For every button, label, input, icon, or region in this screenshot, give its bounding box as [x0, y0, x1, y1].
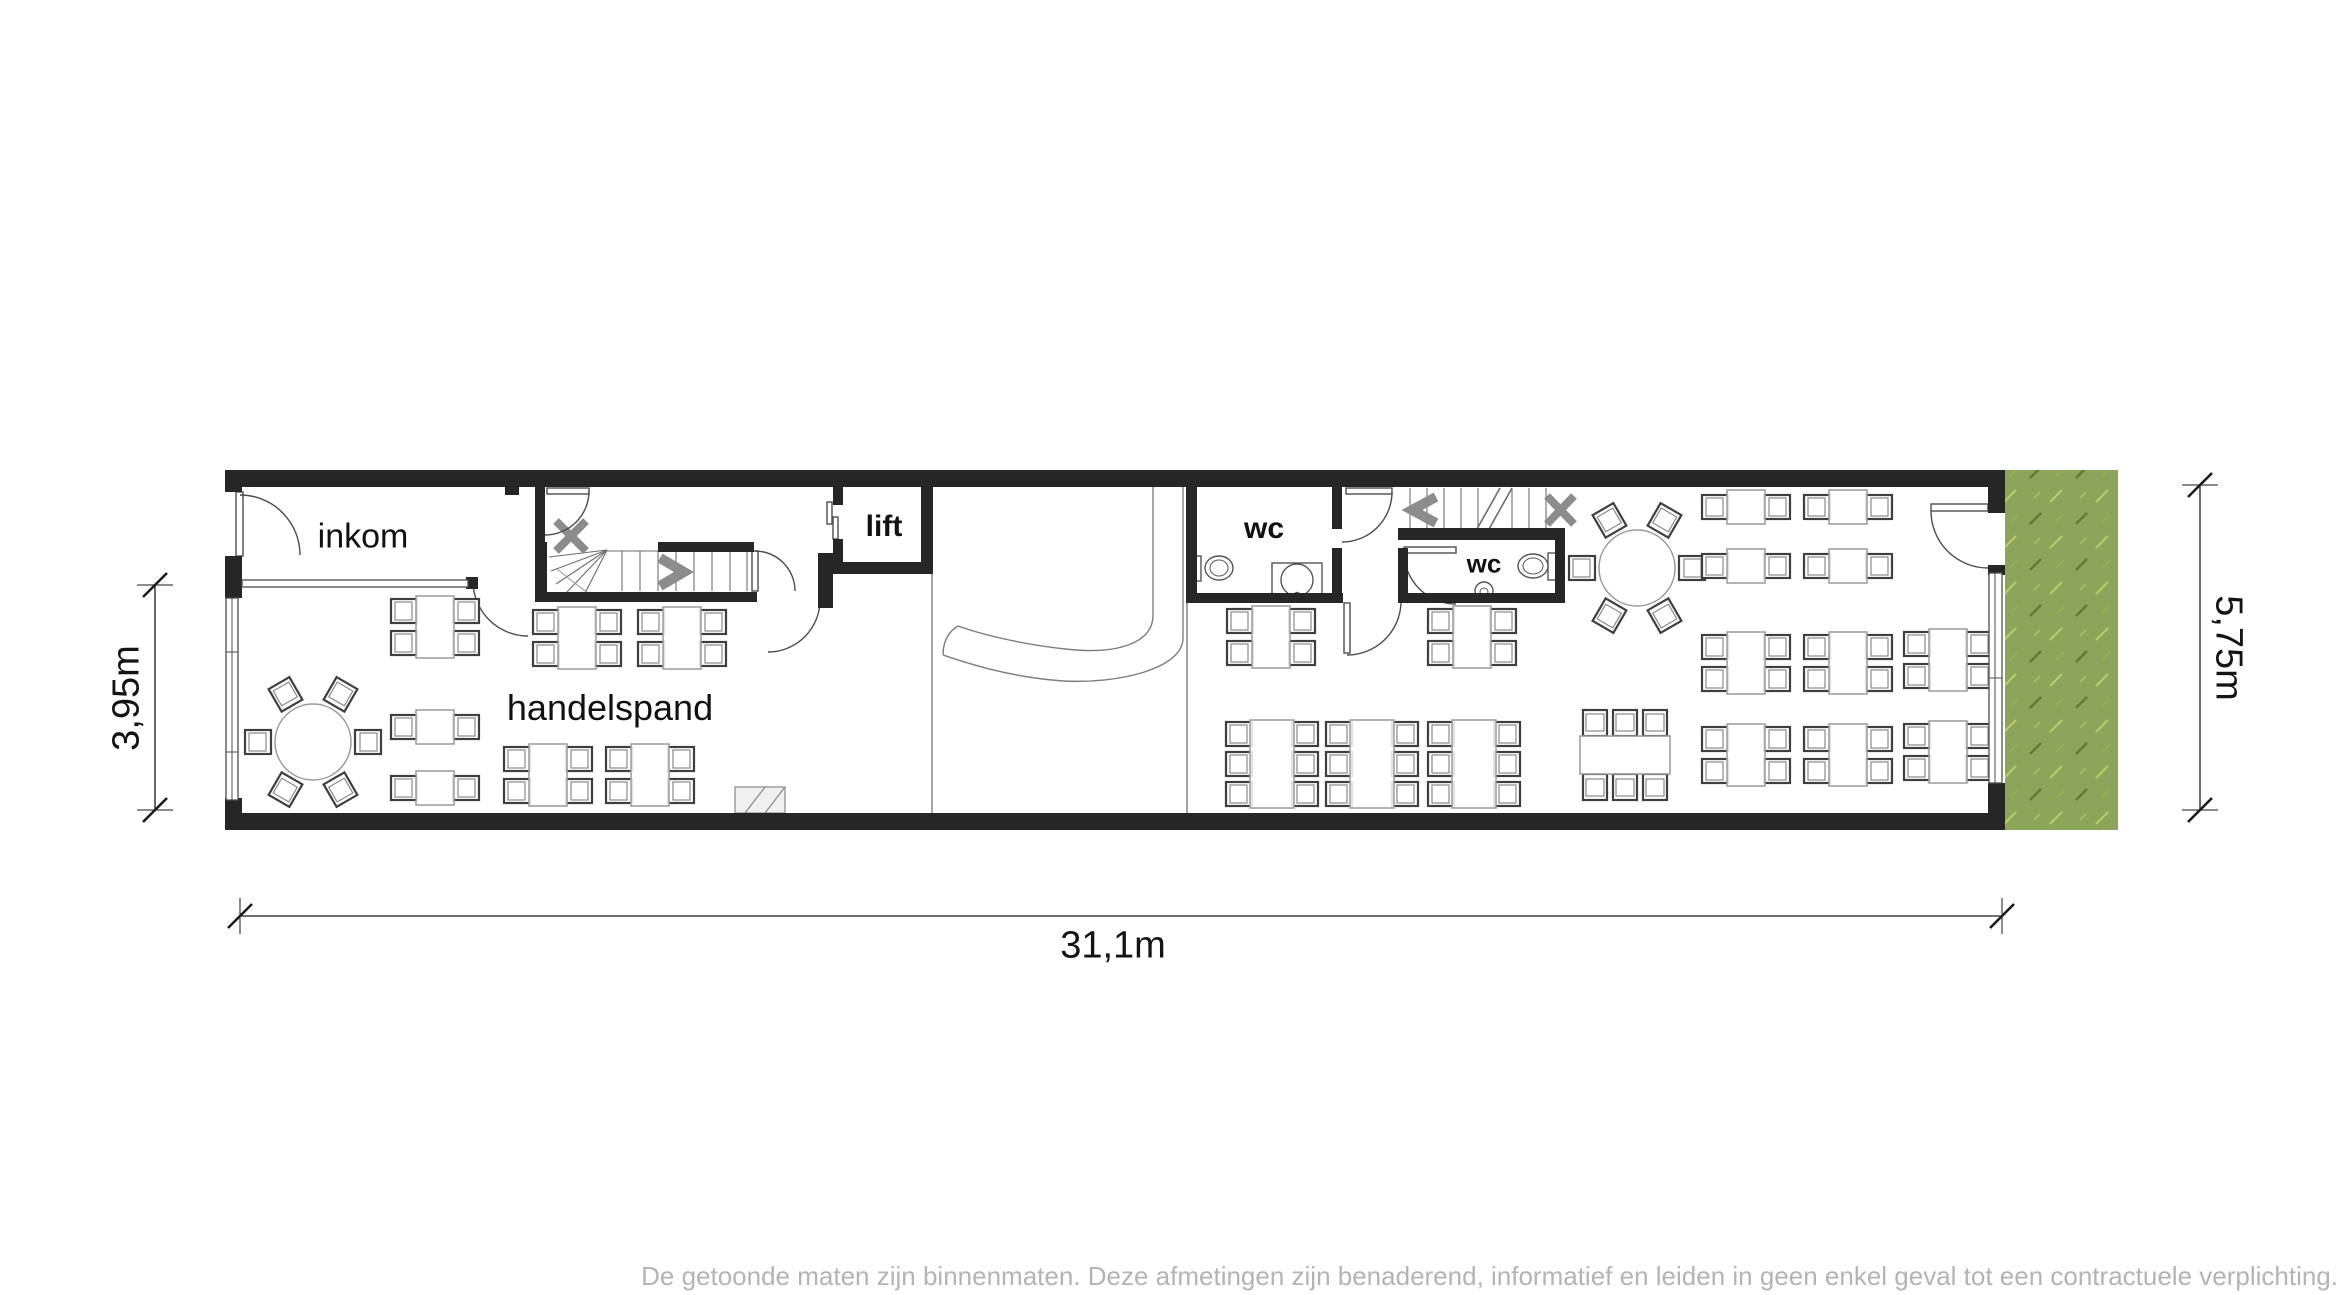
wc-corridor-south-door: [1344, 603, 1401, 655]
furniture-round6: [245, 677, 381, 807]
furniture-table2: [1804, 490, 1892, 524]
garden-strip: [2005, 470, 2118, 830]
stair-direction-arrow-right-icon: [660, 558, 684, 586]
furniture-table2: [1702, 490, 1790, 524]
furniture-table2: [391, 710, 479, 744]
room-label-handelspand: handelspand: [507, 687, 713, 729]
lift-sliding-door: [827, 502, 838, 539]
furniture-table4: [1702, 632, 1790, 694]
dimension-lines: [137, 473, 2218, 934]
inkom-glass-partition: [242, 580, 468, 587]
furniture-table4: [1804, 724, 1892, 786]
furniture-table4: [504, 744, 592, 806]
furniture-table4: [1227, 606, 1315, 668]
bar-counter: [943, 487, 1183, 681]
dim-label-right-depth: 5,75m: [2207, 595, 2250, 701]
window-left: [226, 598, 238, 800]
furniture-table4: [1428, 606, 1516, 668]
corridor-door: [768, 600, 820, 652]
room-label-wc-right: wc: [1467, 549, 1502, 580]
furniture-table6h: [1580, 710, 1670, 800]
furniture-table4: [533, 607, 621, 669]
stair-exit-door: [752, 551, 795, 591]
furniture-table4: [1702, 724, 1790, 786]
furniture-table6v: [1428, 720, 1520, 808]
furniture-table2: [1804, 549, 1892, 583]
room-label-wc-left: wc: [1244, 512, 1284, 546]
furniture-layer: [245, 490, 1992, 813]
room-label-lift: lift: [866, 510, 903, 544]
furniture-table4: [1804, 632, 1892, 694]
stairs-right: [1410, 488, 1574, 529]
disclaimer-text: De getoonde maten zijn binnenmaten. Deze…: [641, 1261, 2338, 1292]
furniture-table4: [1904, 629, 1992, 691]
furniture-table2: [1702, 549, 1790, 583]
dim-label-left-depth: 3,95m: [106, 645, 149, 751]
furniture-table4: [1904, 721, 1992, 783]
entrance-door: [236, 492, 300, 556]
door-x-icon: [556, 521, 586, 551]
stair-end-x-icon: [1547, 496, 1574, 524]
wc-corridor-door: [1342, 488, 1392, 542]
sanitary-fixtures: [1190, 553, 1558, 600]
wall-bottom: [225, 813, 2005, 830]
wall-top: [225, 470, 2005, 487]
furniture-table4: [638, 607, 726, 669]
furniture-round6: [1569, 503, 1705, 633]
dim-label-total-width: 31,1m: [1060, 925, 1166, 968]
floorplan-drawing: [0, 0, 2340, 1295]
stair-direction-arrow-left-icon: [1412, 497, 1436, 523]
room-label-inkom: inkom: [318, 518, 409, 557]
furniture-ramp: [735, 787, 785, 813]
toilet-right-wc: [1518, 553, 1558, 580]
floorplan-canvas: inkom lift wc wc handelspand 31,1m 3,95m…: [0, 0, 2340, 1295]
furniture-table6v: [1226, 720, 1318, 808]
furniture-table4: [606, 744, 694, 806]
interior-lines: [932, 574, 1187, 813]
window-right: [1989, 573, 2002, 783]
furniture-table4: [391, 596, 479, 658]
furniture-table2: [391, 771, 479, 805]
furniture-table6v: [1326, 720, 1418, 808]
terrace-door: [1931, 504, 1988, 568]
inkom-partition-door: [473, 581, 528, 636]
